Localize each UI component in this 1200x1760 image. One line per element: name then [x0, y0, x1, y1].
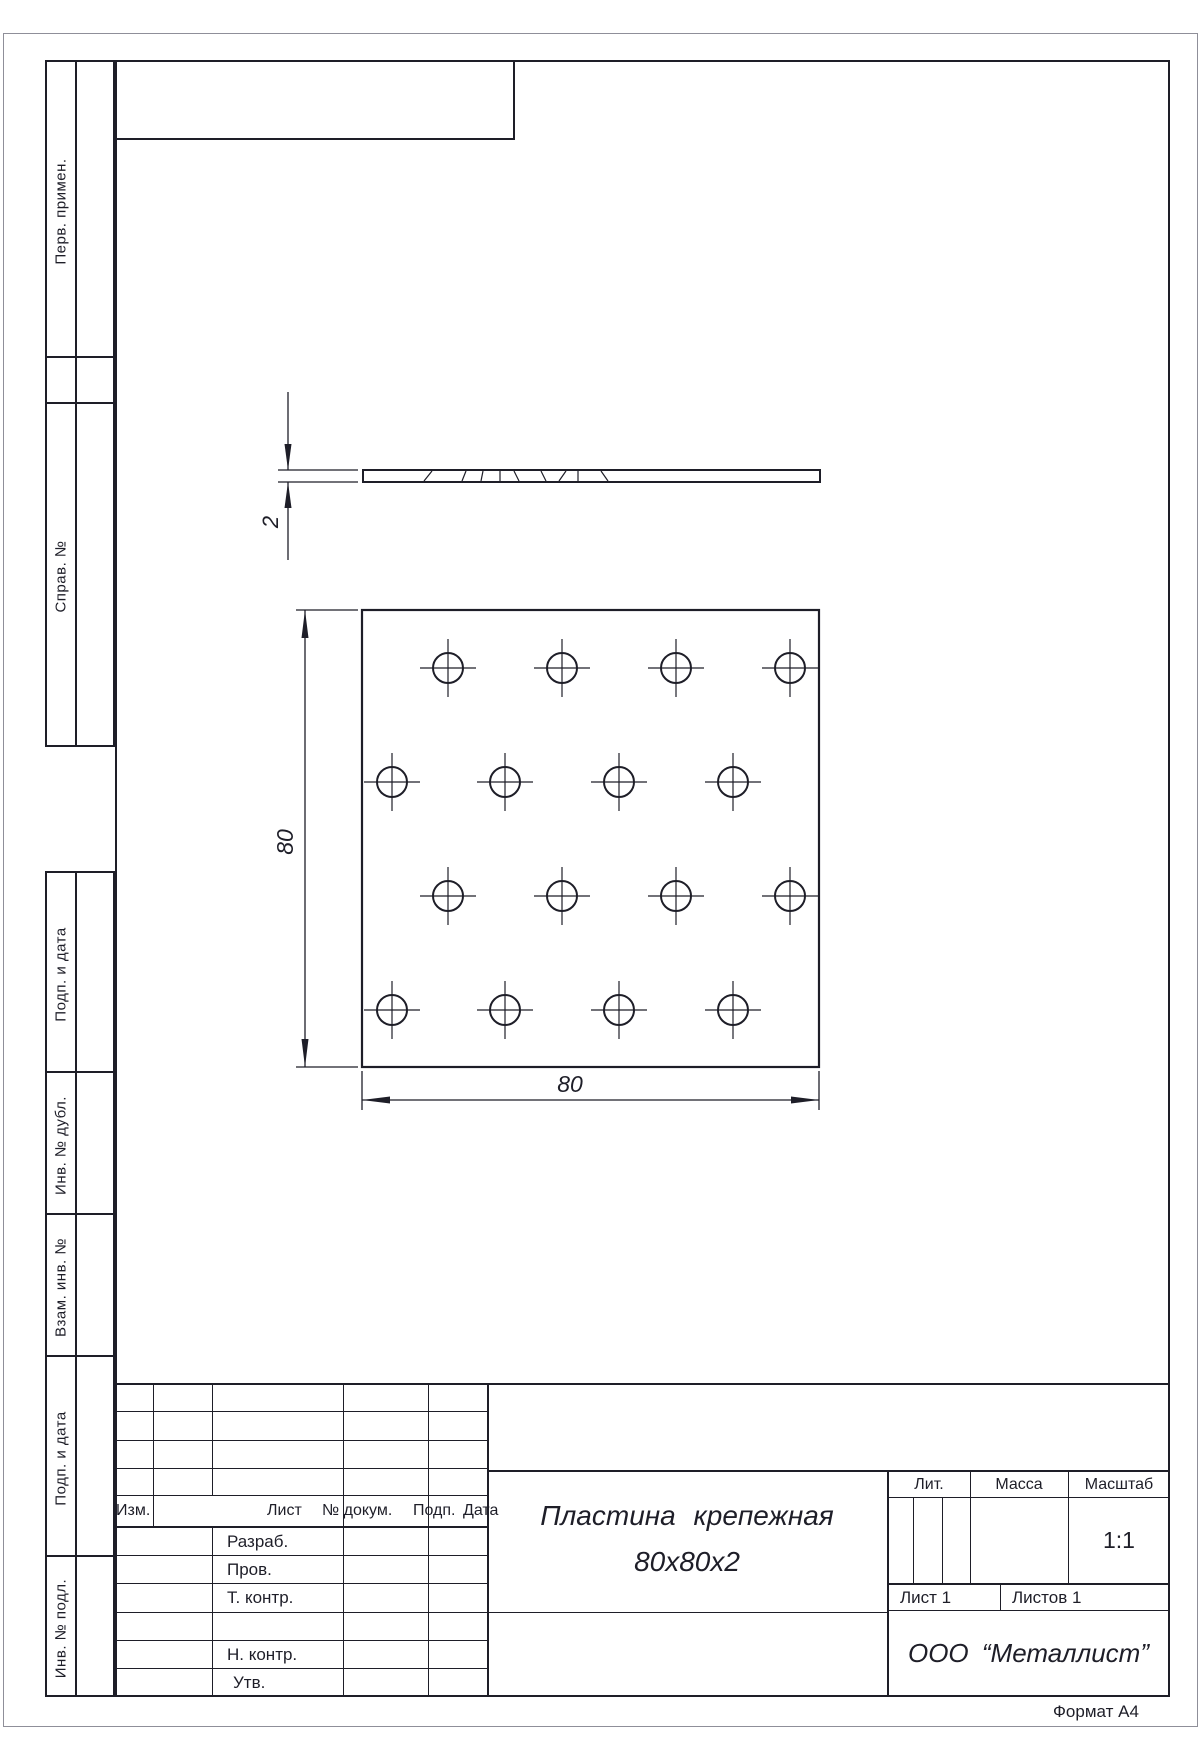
drawing-sheet: Перв. примен. Справ. № Подп. и дата Инв.…: [0, 0, 1200, 1760]
edge-hole-tick: [514, 471, 519, 481]
column-line: [942, 1497, 943, 1583]
row-line: [115, 1555, 487, 1556]
lit-label: Лит.: [914, 1476, 943, 1494]
edge-hole-tick: [424, 471, 432, 481]
row-line: [115, 1526, 487, 1528]
role-utv: Утв.: [233, 1673, 265, 1693]
company-name: ООО “Металлист”: [908, 1638, 1149, 1669]
row-line: [115, 1440, 487, 1441]
role-t-kontr: Т. контр.: [227, 1588, 293, 1608]
part-title-line1: Пластина крепежная: [540, 1500, 834, 1532]
header-izm: Изм.: [116, 1502, 150, 1520]
edge-hole-tick: [541, 471, 546, 481]
dim-height-text: 80: [272, 829, 298, 855]
edge-hole-tick: [601, 471, 608, 481]
dimension-height: 80: [272, 610, 358, 1067]
edge-view: [363, 470, 820, 482]
column-line: [913, 1497, 914, 1583]
row-line: [115, 1612, 487, 1613]
masshtab-label: Масштаб: [1085, 1476, 1153, 1494]
massa-label: Масса: [995, 1476, 1042, 1494]
header-podp: Подп.: [413, 1502, 456, 1520]
sheet-no: Лист 1: [900, 1588, 951, 1608]
dim-thickness-text: 2: [258, 516, 283, 529]
edge-hole-tick: [462, 471, 466, 481]
row-line: [115, 1668, 487, 1669]
row-line: [115, 1495, 487, 1496]
dimension-thickness: 2: [258, 392, 358, 560]
dimension-width: 80: [362, 1071, 819, 1110]
column-line: [1000, 1583, 1001, 1610]
format-note: Формат А4: [1053, 1702, 1139, 1722]
part-title-line2: 80х80х2: [634, 1546, 740, 1578]
column-line: [212, 1526, 213, 1697]
lit-label-cell: Лит.: [889, 1473, 969, 1496]
row-line: [887, 1583, 1170, 1585]
edge-view-hole-ticks: [424, 471, 608, 481]
part-title-field: Пластина крепежная 80х80х2: [489, 1473, 885, 1611]
row-line: [887, 1497, 1170, 1498]
column-line: [212, 1383, 213, 1495]
plan-view: [362, 610, 819, 1067]
scale-value: 1:1: [1103, 1527, 1135, 1554]
role-razrab: Разраб.: [227, 1532, 288, 1552]
edge-hole-tick: [559, 471, 566, 481]
role-n-kontr: Н. контр.: [227, 1645, 297, 1665]
row-line: [115, 1468, 487, 1469]
row-line: [487, 1612, 887, 1613]
scale-cell: 1:1: [1069, 1499, 1169, 1581]
header-no-dokum: № докум.: [322, 1502, 392, 1520]
company-cell: ООО “Металлист”: [889, 1611, 1168, 1695]
header-list: Лист: [267, 1502, 302, 1520]
column-line: [343, 1383, 344, 1697]
row-line: [115, 1640, 487, 1641]
masshtab-label-cell: Масштаб: [1069, 1473, 1169, 1496]
row-line: [115, 1583, 487, 1584]
designation-box: [487, 1383, 1170, 1472]
row-line: [115, 1411, 487, 1412]
column-line: [428, 1383, 429, 1697]
sheets-total: Листов 1: [1012, 1588, 1081, 1608]
edge-hole-tick: [481, 471, 483, 481]
hole-pattern: [364, 639, 818, 1039]
massa-label-cell: Масса: [971, 1473, 1067, 1496]
role-prov: Пров.: [227, 1560, 272, 1580]
column-line: [153, 1383, 154, 1526]
dim-width-text: 80: [557, 1071, 583, 1097]
